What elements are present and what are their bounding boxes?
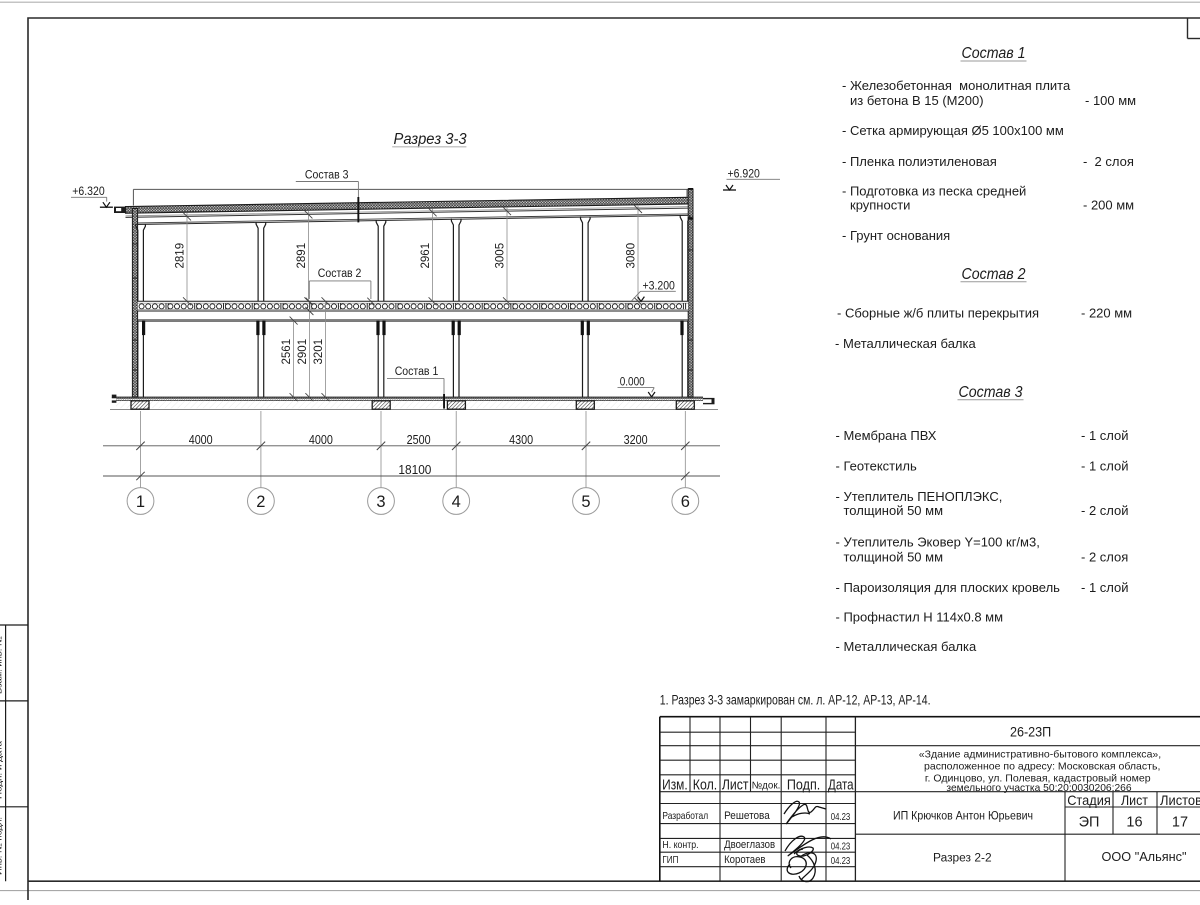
svg-text:2: 2 <box>256 493 265 511</box>
svg-text:26-23П: 26-23П <box>1010 724 1051 740</box>
svg-text:- Пароизоляция для плоских кро: - Пароизоляция для плоских кровель <box>836 580 1061 595</box>
svg-text:- 2 слоя: - 2 слоя <box>1083 154 1134 169</box>
svg-text:- 1 слой: - 1 слой <box>1081 580 1129 595</box>
svg-text:Изм.: Изм. <box>662 777 688 793</box>
svg-text:из бетона В 15 (М200): из бетона В 15 (М200) <box>850 93 984 108</box>
svg-text:- Сборные ж/б плиты перекрытия: - Сборные ж/б плиты перекрытия <box>837 305 1039 320</box>
svg-text:Лист: Лист <box>1121 792 1149 808</box>
svg-text:Состав 1: Состав 1 <box>395 366 439 378</box>
svg-text:Листов: Листов <box>1160 792 1200 808</box>
svg-text:Лист: Лист <box>722 777 749 793</box>
svg-text:- 2 слой: - 2 слой <box>1081 503 1129 518</box>
svg-text:- 1 слой: - 1 слой <box>1081 459 1129 474</box>
svg-text:- Сетка армирующая Ø5 100х100: - Сетка армирующая Ø5 100х100 мм <box>842 123 1064 138</box>
svg-text:3080: 3080 <box>626 243 638 269</box>
svg-text:3200: 3200 <box>624 433 648 447</box>
svg-text:5: 5 <box>581 493 590 511</box>
svg-text:Дата: Дата <box>828 777 854 793</box>
svg-text:6: 6 <box>681 493 690 511</box>
svg-text:толщиной 50 мм: толщиной 50 мм <box>844 503 944 518</box>
svg-text:Подп.: Подп. <box>787 777 820 793</box>
svg-text:крупности: крупности <box>850 198 910 213</box>
svg-text:2891: 2891 <box>296 243 308 269</box>
svg-text:4000: 4000 <box>309 433 333 447</box>
svg-text:3: 3 <box>376 493 385 511</box>
svg-text:- Мембрана ПВХ: - Мембрана ПВХ <box>836 428 937 443</box>
svg-text:- 200 мм: - 200 мм <box>1083 198 1134 213</box>
svg-text:Коротаев: Коротаев <box>724 854 766 866</box>
svg-text:Кол.: Кол. <box>693 777 717 793</box>
svg-text:2561: 2561 <box>281 339 293 365</box>
svg-text:- Подготовка из песка средней: - Подготовка из песка средней <box>842 183 1026 198</box>
svg-text:+6.320: +6.320 <box>72 186 104 198</box>
svg-text:- Геотекстиль: - Геотекстиль <box>836 459 917 474</box>
svg-text:+6.920: +6.920 <box>728 168 760 180</box>
svg-text:- 100 мм: - 100 мм <box>1085 93 1136 108</box>
svg-text:04.23: 04.23 <box>831 811 851 823</box>
svg-text:Состав 3: Состав 3 <box>959 384 1023 401</box>
svg-text:Подп. и дата: Подп. и дата <box>0 741 4 799</box>
svg-text:3005: 3005 <box>495 243 507 269</box>
svg-text:2901: 2901 <box>297 339 309 365</box>
svg-text:04.23: 04.23 <box>831 841 851 853</box>
svg-text:- 2 слоя: - 2 слоя <box>1081 550 1128 565</box>
svg-text:17: 17 <box>1172 815 1188 831</box>
svg-text:Разработал: Разработал <box>662 810 708 822</box>
svg-text:Двоеглазов: Двоеглазов <box>724 839 775 851</box>
svg-text:Состав 2: Состав 2 <box>318 268 362 280</box>
svg-text:Разрез 2-2: Разрез 2-2 <box>933 853 992 865</box>
svg-text:- Грунт основания: - Грунт основания <box>842 228 950 243</box>
svg-text:ИП Крючков Антон Юрьевич: ИП Крючков Антон Юрьевич <box>893 811 1033 823</box>
svg-text:2961: 2961 <box>420 243 432 269</box>
svg-text:18100: 18100 <box>398 463 431 477</box>
svg-text:Состав 1: Состав 1 <box>962 45 1026 62</box>
svg-text:2819: 2819 <box>175 243 187 269</box>
svg-text:16: 16 <box>1126 815 1142 831</box>
svg-text:ООО "Альянс": ООО "Альянс" <box>1102 849 1187 864</box>
svg-text:Стадия: Стадия <box>1067 792 1111 808</box>
svg-text:Инв. № подл.: Инв. № подл. <box>0 817 4 875</box>
svg-text:4: 4 <box>452 493 461 511</box>
svg-text:расположенное по адресу: Моско: расположенное по адресу: Московская обла… <box>924 760 1160 772</box>
svg-text:Н. контр.: Н. контр. <box>662 839 698 851</box>
svg-text:Состав 2: Состав 2 <box>962 266 1026 283</box>
svg-text:ГИП: ГИП <box>662 854 678 866</box>
svg-text:4300: 4300 <box>509 433 533 447</box>
svg-text:«Здание административно-бытово: «Здание административно-бытового комплек… <box>919 748 1161 760</box>
svg-text:- Металлическая балка: - Металлическая балка <box>835 336 976 351</box>
svg-text:04.23: 04.23 <box>831 855 851 867</box>
svg-text:Решетова: Решетова <box>724 810 770 822</box>
svg-text:- Пленка полиэтиленовая: - Пленка полиэтиленовая <box>842 154 997 169</box>
svg-text:- Железобетонная монолитная п: - Железобетонная монолитная плита <box>842 78 1071 93</box>
svg-text:1: 1 <box>136 493 145 511</box>
svg-text:Разрез 3-3: Разрез 3-3 <box>394 131 467 148</box>
svg-text:- Металлическая балка: - Металлическая балка <box>836 639 977 654</box>
svg-text:- Утеплитель ПЕНОПЛЭКС,: - Утеплитель ПЕНОПЛЭКС, <box>836 489 1003 504</box>
svg-text:1. Разрез 3-3 замаркирован см.: 1. Разрез 3-3 замаркирован см. л. АР-12,… <box>660 692 931 707</box>
svg-text:Состав 3: Состав 3 <box>305 170 349 182</box>
svg-text:Взам. инв. №: Взам. инв. № <box>0 636 4 694</box>
svg-text:+3.200: +3.200 <box>643 280 675 292</box>
svg-text:- 220 мм: - 220 мм <box>1081 305 1132 320</box>
svg-text:3201: 3201 <box>313 339 325 365</box>
svg-text:2500: 2500 <box>407 433 431 447</box>
svg-text:4000: 4000 <box>189 433 213 447</box>
svg-text:№док.: №док. <box>752 780 781 791</box>
svg-text:- Утеплитель Эковер Y=100 кг/м: - Утеплитель Эковер Y=100 кг/м3, <box>836 534 1040 549</box>
svg-text:- 1 слой: - 1 слой <box>1081 428 1129 443</box>
svg-text:- Профнастил Н 114х0.8 мм: - Профнастил Н 114х0.8 мм <box>836 609 1004 624</box>
svg-text:толщиной 50 мм: толщиной 50 мм <box>844 550 944 565</box>
svg-text:0.000: 0.000 <box>620 376 645 388</box>
svg-text:ЭП: ЭП <box>1079 815 1100 831</box>
